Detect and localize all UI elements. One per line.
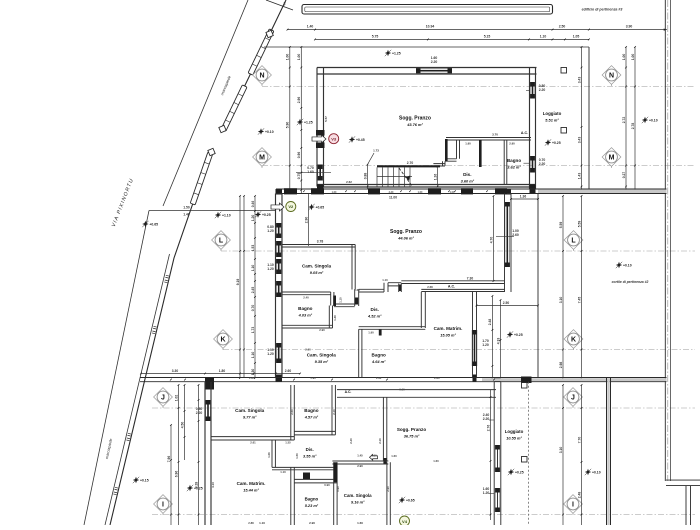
svg-text:Dis.: Dis.	[306, 447, 314, 452]
svg-text:5.59: 5.59	[559, 222, 563, 229]
svg-text:1.38: 1.38	[333, 315, 337, 321]
svg-text:2.40: 2.40	[303, 296, 309, 300]
svg-text:Bagno: Bagno	[304, 408, 318, 413]
svg-text:1.00: 1.00	[631, 54, 635, 61]
svg-text:+0.25: +0.25	[552, 141, 561, 145]
svg-text:2.90: 2.90	[305, 348, 311, 352]
svg-text:2.98: 2.98	[559, 362, 563, 369]
svg-text:1.90: 1.90	[368, 331, 374, 335]
svg-text:10.94: 10.94	[426, 25, 435, 29]
svg-text:2.68: 2.68	[427, 285, 433, 289]
svg-text:2.90: 2.90	[386, 486, 390, 492]
svg-text:K: K	[571, 337, 576, 344]
svg-text:3.62 m²: 3.62 m²	[507, 164, 521, 169]
svg-text:A.C.: A.C.	[521, 131, 528, 135]
svg-text:L: L	[219, 238, 224, 245]
svg-text:2.10: 2.10	[332, 409, 336, 415]
svg-text:0.90: 0.90	[324, 483, 330, 487]
svg-text:9.05 m²: 9.05 m²	[310, 270, 324, 275]
svg-text:2.50: 2.50	[290, 409, 294, 415]
svg-text:2.20: 2.20	[483, 417, 490, 421]
svg-text:+0.25: +0.25	[515, 470, 524, 474]
svg-text:I: I	[572, 502, 574, 509]
svg-text:+0.25: +0.25	[514, 333, 523, 337]
svg-text:1.02: 1.02	[174, 395, 178, 402]
svg-text:1.10: 1.10	[251, 352, 255, 359]
svg-text:4.52 m²: 4.52 m²	[367, 313, 382, 318]
svg-text:3.30: 3.30	[172, 369, 179, 373]
svg-text:2.70: 2.70	[407, 161, 414, 165]
svg-text:1.36: 1.36	[520, 195, 527, 199]
svg-text:1.26: 1.26	[433, 174, 437, 181]
svg-text:+0.65: +0.65	[406, 498, 415, 502]
svg-text:3.28: 3.28	[194, 482, 198, 489]
svg-text:2.96: 2.96	[297, 97, 301, 104]
svg-text:Loggiato: Loggiato	[543, 111, 562, 116]
svg-text:J: J	[571, 395, 575, 402]
svg-text:6.96: 6.96	[174, 471, 178, 478]
svg-text:7.45: 7.45	[577, 297, 581, 304]
svg-text:Cam. Singola: Cam. Singola	[307, 353, 337, 358]
svg-text:2.40: 2.40	[349, 438, 353, 444]
svg-text:3.60 m²: 3.60 m²	[461, 178, 475, 183]
svg-text:4.57 m²: 4.57 m²	[304, 414, 319, 419]
svg-text:2.20: 2.20	[389, 191, 394, 194]
svg-text:7.96: 7.96	[167, 456, 171, 463]
svg-text:A.C.: A.C.	[345, 390, 352, 394]
svg-text:3.78: 3.78	[317, 240, 324, 244]
svg-text:5.75: 5.75	[372, 34, 379, 38]
svg-text:1.05: 1.05	[573, 34, 580, 38]
svg-text:1.80: 1.80	[219, 369, 226, 373]
svg-text:2.48: 2.48	[577, 492, 581, 499]
svg-text:+1.10: +1.10	[222, 213, 231, 217]
svg-text:Dis.: Dis.	[463, 172, 471, 177]
svg-text:1.50: 1.50	[183, 206, 190, 210]
svg-text:9.19: 9.19	[236, 279, 240, 286]
svg-text:Cam. Matrim.: Cam. Matrim.	[237, 481, 266, 486]
svg-text:+0.65: +0.65	[316, 205, 325, 209]
svg-text:2.20: 2.20	[196, 411, 203, 415]
svg-text:2.45: 2.45	[251, 287, 255, 294]
svg-text:+0.10: +0.10	[649, 118, 658, 122]
svg-text:4.50: 4.50	[180, 422, 184, 429]
svg-text:N: N	[259, 73, 264, 80]
svg-text:1.73: 1.73	[373, 149, 379, 153]
svg-text:2.84: 2.84	[249, 376, 255, 380]
svg-text:44.06 m²: 44.06 m²	[397, 235, 414, 240]
svg-text:2.72: 2.72	[622, 117, 626, 124]
svg-text:0.88: 0.88	[363, 173, 367, 180]
svg-text:1.45: 1.45	[357, 454, 363, 458]
svg-text:2.90: 2.90	[309, 521, 315, 525]
svg-text:+0.65: +0.65	[149, 222, 158, 226]
svg-text:9.35 m²: 9.35 m²	[315, 359, 329, 364]
svg-text:2.78: 2.78	[631, 123, 635, 130]
svg-text:Dis.: Dis.	[370, 307, 378, 312]
svg-text:1.00: 1.00	[286, 54, 290, 61]
svg-text:1.10: 1.10	[339, 297, 343, 303]
svg-text:2.20: 2.20	[539, 162, 546, 166]
svg-text:1.20: 1.20	[482, 343, 489, 347]
svg-text:2.62: 2.62	[346, 180, 352, 184]
svg-text:V3: V3	[331, 136, 337, 141]
svg-text:+0.10: +0.10	[592, 470, 601, 474]
svg-text:1.60: 1.60	[332, 191, 337, 194]
svg-text:Bagno: Bagno	[507, 158, 521, 163]
svg-text:4.10: 4.10	[211, 482, 215, 488]
svg-text:1.90: 1.90	[465, 142, 471, 146]
svg-text:1.10: 1.10	[251, 265, 255, 272]
svg-text:1.20: 1.20	[483, 491, 490, 495]
svg-text:1.50: 1.50	[295, 453, 299, 459]
svg-text:1.53: 1.53	[251, 245, 255, 252]
svg-text:+0.10: +0.10	[265, 130, 274, 134]
svg-text:1.10: 1.10	[382, 278, 388, 282]
svg-text:5.15: 5.15	[484, 34, 491, 38]
svg-text:3.43: 3.43	[577, 137, 581, 144]
svg-text:Bagno: Bagno	[372, 353, 386, 358]
svg-text:1.06: 1.06	[267, 452, 271, 458]
svg-text:2.50: 2.50	[559, 25, 566, 29]
svg-text:Sogg. Pranzo: Sogg. Pranzo	[390, 229, 422, 235]
svg-text:V2: V2	[288, 204, 294, 209]
svg-text:+0.15: +0.15	[140, 478, 149, 482]
svg-text:1.73: 1.73	[251, 327, 255, 334]
svg-text:Loggiato: Loggiato	[505, 429, 524, 434]
svg-text:2.90: 2.90	[434, 376, 440, 380]
svg-text:1.60: 1.60	[391, 454, 397, 458]
svg-text:7.30: 7.30	[467, 277, 474, 281]
svg-text:1.10: 1.10	[540, 34, 547, 38]
svg-text:5.90: 5.90	[286, 122, 290, 129]
svg-text:3.10: 3.10	[559, 447, 563, 454]
svg-text:V4: V4	[402, 519, 408, 524]
svg-text:1.90: 1.90	[376, 376, 382, 380]
svg-text:2.90: 2.90	[304, 217, 308, 224]
svg-text:Cam. Matrim.: Cam. Matrim.	[434, 326, 463, 331]
svg-text:1.60: 1.60	[418, 191, 423, 194]
svg-text:1.60: 1.60	[357, 521, 363, 525]
svg-text:2.90: 2.90	[357, 464, 363, 468]
svg-text:2.60: 2.60	[285, 369, 292, 373]
svg-text:36.75 m²: 36.75 m²	[404, 433, 420, 438]
svg-text:2.20: 2.20	[431, 60, 438, 64]
svg-text:1.40: 1.40	[183, 213, 190, 217]
svg-text:0.70: 0.70	[251, 305, 255, 312]
svg-text:3.43: 3.43	[577, 77, 581, 84]
svg-text:4.03 m²: 4.03 m²	[298, 312, 313, 317]
svg-text:1.20: 1.20	[267, 229, 274, 233]
svg-text:cortile di pertinenza #2: cortile di pertinenza #2	[612, 280, 649, 284]
svg-text:10.55 m²: 10.55 m²	[506, 435, 522, 440]
svg-text:11.00: 11.00	[389, 196, 397, 200]
svg-text:1.00: 1.00	[622, 54, 626, 61]
svg-text:J: J	[161, 395, 165, 402]
svg-text:43.76 m²: 43.76 m²	[406, 122, 423, 127]
svg-text:4.70: 4.70	[489, 237, 493, 244]
svg-text:1.20: 1.20	[267, 352, 274, 356]
svg-text:1.90: 1.90	[310, 376, 316, 380]
svg-text:7.70: 7.70	[577, 437, 581, 444]
svg-text:2.20: 2.20	[539, 88, 546, 92]
svg-text:+1.25: +1.25	[392, 51, 401, 55]
svg-text:N: N	[609, 73, 614, 80]
svg-text:L: L	[571, 238, 576, 245]
svg-text:1.00: 1.00	[450, 191, 455, 194]
svg-text:1.60: 1.60	[307, 170, 314, 174]
svg-text:9.77 m²: 9.77 m²	[243, 414, 257, 419]
svg-text:Bagno: Bagno	[298, 306, 312, 311]
svg-text:3.90: 3.90	[626, 25, 633, 29]
svg-text:15.05 m²: 15.05 m²	[440, 332, 456, 337]
svg-text:Cam. Singola: Cam. Singola	[344, 493, 372, 498]
svg-text:+0.45: +0.45	[356, 138, 365, 142]
svg-text:I: I	[162, 502, 164, 509]
svg-text:+0.25: +0.25	[262, 213, 271, 217]
svg-text:0.90: 0.90	[371, 454, 377, 458]
svg-text:0.46: 0.46	[251, 201, 255, 208]
svg-text:1.40: 1.40	[307, 25, 314, 29]
svg-text:4.33: 4.33	[496, 338, 500, 345]
svg-text:K: K	[220, 337, 225, 344]
svg-text:1.10: 1.10	[280, 470, 286, 474]
svg-text:Sogg. Pranzo: Sogg. Pranzo	[399, 116, 431, 122]
svg-text:1.10: 1.10	[259, 521, 265, 525]
svg-text:1.43: 1.43	[577, 173, 581, 180]
svg-text:6.90: 6.90	[399, 388, 405, 392]
svg-text:M: M	[259, 155, 265, 162]
svg-text:Cam. Singola: Cam. Singola	[235, 408, 265, 413]
svg-text:+1.25: +1.25	[304, 120, 313, 124]
svg-text:0.90: 0.90	[336, 486, 340, 492]
svg-text:1.55: 1.55	[285, 441, 291, 445]
svg-text:2.48: 2.48	[488, 319, 492, 326]
svg-text:0.75: 0.75	[297, 173, 301, 180]
svg-text:4.64 m²: 4.64 m²	[371, 359, 386, 364]
svg-text:0.60: 0.60	[354, 288, 360, 292]
svg-text:3.55 m²: 3.55 m²	[303, 453, 317, 458]
svg-text:2.90: 2.90	[319, 328, 325, 332]
svg-text:edificio di pertinenza #3: edificio di pertinenza #3	[582, 8, 623, 12]
svg-text:5.51 m²: 5.51 m²	[545, 117, 559, 122]
svg-text:1.00: 1.00	[297, 54, 301, 61]
svg-text:3.10: 3.10	[559, 297, 563, 304]
svg-text:1.20: 1.20	[251, 215, 255, 222]
svg-text:15.44 m²: 15.44 m²	[243, 487, 259, 492]
svg-text:2.50: 2.50	[503, 301, 510, 305]
svg-text:+0.10: +0.10	[623, 263, 632, 267]
svg-text:A.C.: A.C.	[448, 285, 455, 289]
svg-text:2.76: 2.76	[486, 425, 490, 432]
svg-text:0.27: 0.27	[622, 172, 626, 179]
svg-text:5.57: 5.57	[324, 116, 328, 122]
svg-text:Bagno: Bagno	[305, 497, 319, 502]
svg-text:Cam. Singola: Cam. Singola	[302, 264, 332, 269]
svg-text:2.90: 2.90	[509, 142, 515, 146]
svg-text:9.16 m²: 9.16 m²	[351, 499, 365, 504]
svg-text:2.10: 2.10	[378, 438, 382, 444]
svg-text:2.88: 2.88	[248, 521, 254, 525]
svg-text:2.61: 2.61	[250, 441, 256, 445]
svg-text:0.96: 0.96	[297, 152, 301, 159]
svg-text:3.70: 3.70	[492, 133, 498, 137]
svg-text:Sogg. Pranzo: Sogg. Pranzo	[397, 427, 427, 432]
svg-text:1.20: 1.20	[267, 267, 274, 271]
svg-text:M: M	[609, 155, 615, 162]
svg-text:5.23 m²: 5.23 m²	[305, 503, 319, 508]
svg-text:5.59: 5.59	[577, 221, 581, 228]
svg-text:1.60: 1.60	[433, 459, 439, 463]
